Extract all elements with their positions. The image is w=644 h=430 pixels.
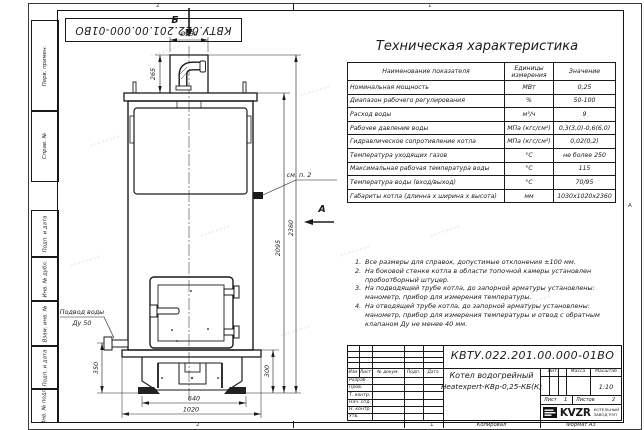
water-inlet-label-2: Ду 50 bbox=[72, 319, 92, 327]
dim-640: 640 bbox=[188, 395, 200, 403]
tb-scale-value: 1:10 bbox=[590, 383, 622, 391]
spec-table: Наименование показателя Единицы измерени… bbox=[347, 62, 616, 203]
spec-col-header: Значение bbox=[554, 63, 616, 81]
note-item: 3.На подводящей трубе котла, до запорной… bbox=[352, 284, 622, 302]
door-bolt bbox=[171, 329, 173, 331]
top-lug-right bbox=[243, 82, 246, 93]
spec-row: Температура уходящих газов°Сне более 250 bbox=[348, 148, 616, 162]
spec-header-row: Наименование показателя Единицы измерени… bbox=[348, 63, 616, 81]
tb-col-list: Лист bbox=[359, 370, 372, 375]
spec-row: Расход водым³/ч9 bbox=[348, 108, 616, 122]
tb-sheets-value: 2 bbox=[612, 397, 615, 403]
top-lug-left bbox=[133, 82, 136, 93]
tb-col-docnum: № докум. bbox=[372, 370, 404, 375]
tb-role-prov: Пров. bbox=[349, 385, 362, 390]
kvzr-logo-icon bbox=[543, 407, 557, 418]
tb-line bbox=[572, 395, 573, 404]
tb-lit-header: Лит. bbox=[540, 369, 566, 374]
spec-col-header: Наименование показателя bbox=[348, 63, 505, 81]
spec-row: Габариты котла (длинна х ширина х высота… bbox=[348, 189, 616, 203]
door-hinge-bottom-pin bbox=[234, 326, 239, 338]
door-bolt bbox=[190, 290, 192, 292]
spec-row: Гидравлическое сопротивление котлаМПа (к… bbox=[348, 135, 616, 149]
tb-line bbox=[347, 362, 443, 363]
ash-door-vent bbox=[185, 363, 200, 372]
pedestal bbox=[138, 357, 246, 394]
dim-265: 265 bbox=[149, 68, 157, 80]
notes-list: 1.Все размеры для справок, допустимые от… bbox=[352, 258, 622, 328]
callout-leader bbox=[263, 180, 296, 195]
tb-product-name-1: Котел водогрейный bbox=[443, 371, 540, 380]
tb-col-podp: Подп. bbox=[404, 370, 423, 375]
tb-sheets-header: Листов bbox=[576, 397, 595, 403]
tb-role-razrab: Разраб. bbox=[349, 378, 367, 383]
ash-door bbox=[179, 363, 206, 384]
tb-role-tkontr: Т. контр. bbox=[349, 393, 370, 398]
tb-mass-header: Масса bbox=[566, 369, 590, 374]
spec-row: Максимальная рабочая температура воды°С1… bbox=[348, 162, 616, 176]
spec-row: Температура воды (вход/выход)°С70/95 bbox=[348, 176, 616, 190]
tb-scale-header: Масштаб bbox=[590, 369, 622, 374]
spec-row: Рабочее давление водыМПа (кгс/см²)0,3(3,… bbox=[348, 121, 616, 135]
brand-caption-2: ЗАВОД РЭП bbox=[594, 413, 620, 417]
note-item: 4.На отводящей трубе котла, до запорной … bbox=[352, 302, 622, 328]
door-bolt bbox=[176, 340, 178, 342]
view-a-arrowhead bbox=[304, 219, 313, 225]
tb-line bbox=[347, 351, 443, 352]
view-a-label: А bbox=[317, 204, 325, 215]
door-handle-pivot bbox=[150, 305, 157, 317]
door-hinge-top-pin bbox=[234, 286, 239, 298]
label-leader bbox=[104, 317, 114, 338]
note-item: 2.На боковой стенке котла в области топо… bbox=[352, 267, 622, 285]
water-inlet-label-1: Подвод воды bbox=[60, 308, 104, 316]
tb-line bbox=[347, 413, 443, 414]
water-inlet-flange bbox=[104, 337, 112, 350]
tb-role-utv: Утв. bbox=[349, 414, 359, 419]
boiler-body bbox=[128, 101, 253, 350]
company-logo: KVZR КОТЕЛЬНЫЙ ЗАВОД РЭП bbox=[540, 404, 622, 421]
tb-role-nkontr: Н. контр. bbox=[349, 407, 371, 412]
water-inlet-pipe bbox=[112, 340, 128, 347]
foot-pad-right bbox=[224, 387, 246, 394]
footer-tick bbox=[404, 421, 405, 428]
tb-role-nachotd: Нач. отд. bbox=[349, 400, 371, 405]
callout-see-note: см. п. 2 bbox=[287, 171, 312, 179]
tb-col-data: Дата bbox=[423, 370, 443, 375]
tb-sheet-value: 1 bbox=[564, 397, 567, 403]
dim-d250: Ø250 bbox=[179, 30, 197, 38]
panel-hinge-right bbox=[247, 116, 251, 143]
upper-panel bbox=[134, 108, 247, 194]
spec-table-title: Техническая характеристика bbox=[347, 39, 607, 54]
tb-doc-number: КВТУ.022.201.00.000-01ВО bbox=[443, 349, 622, 362]
tb-col-izm: Изм bbox=[347, 370, 359, 375]
drawing-sheet: 2 1 2 1 А Перв. примен. Справ. № Подп. и… bbox=[0, 0, 644, 430]
dim-1020: 1020 bbox=[183, 406, 199, 414]
spec-row: Номинальная мощностьМВт0,25 bbox=[348, 81, 616, 95]
dim-300: 300 bbox=[263, 365, 271, 377]
dim-2095: 2095 bbox=[274, 240, 282, 256]
top-plate bbox=[124, 93, 257, 101]
elbow-pipe bbox=[176, 61, 206, 90]
door-bolt bbox=[207, 328, 209, 330]
note-item: 1.Все размеры для справок, допустимые от… bbox=[352, 258, 622, 267]
format-label: Формат А3 bbox=[540, 422, 622, 428]
copied-label: Копировал bbox=[443, 422, 540, 428]
tb-line bbox=[347, 357, 443, 358]
tb-sheet-header: Лист bbox=[544, 397, 557, 403]
tb-line bbox=[540, 376, 622, 377]
tb-product-name-2: Heatexpert-КВр-0,25-КБ(К) bbox=[439, 382, 544, 391]
brand-text: KVZR bbox=[560, 407, 591, 419]
spec-row: Диапазон рабочего регулирования%50-100 bbox=[348, 94, 616, 108]
dim-2360: 2360 bbox=[287, 220, 295, 236]
dim-350: 350 bbox=[92, 362, 100, 374]
spec-col-header: Единицы измерения bbox=[505, 63, 554, 81]
sampling-fitting bbox=[253, 192, 263, 199]
foot-pad-left bbox=[138, 387, 160, 394]
bottom-plate bbox=[122, 350, 261, 357]
view-b-label: Б bbox=[171, 15, 178, 26]
